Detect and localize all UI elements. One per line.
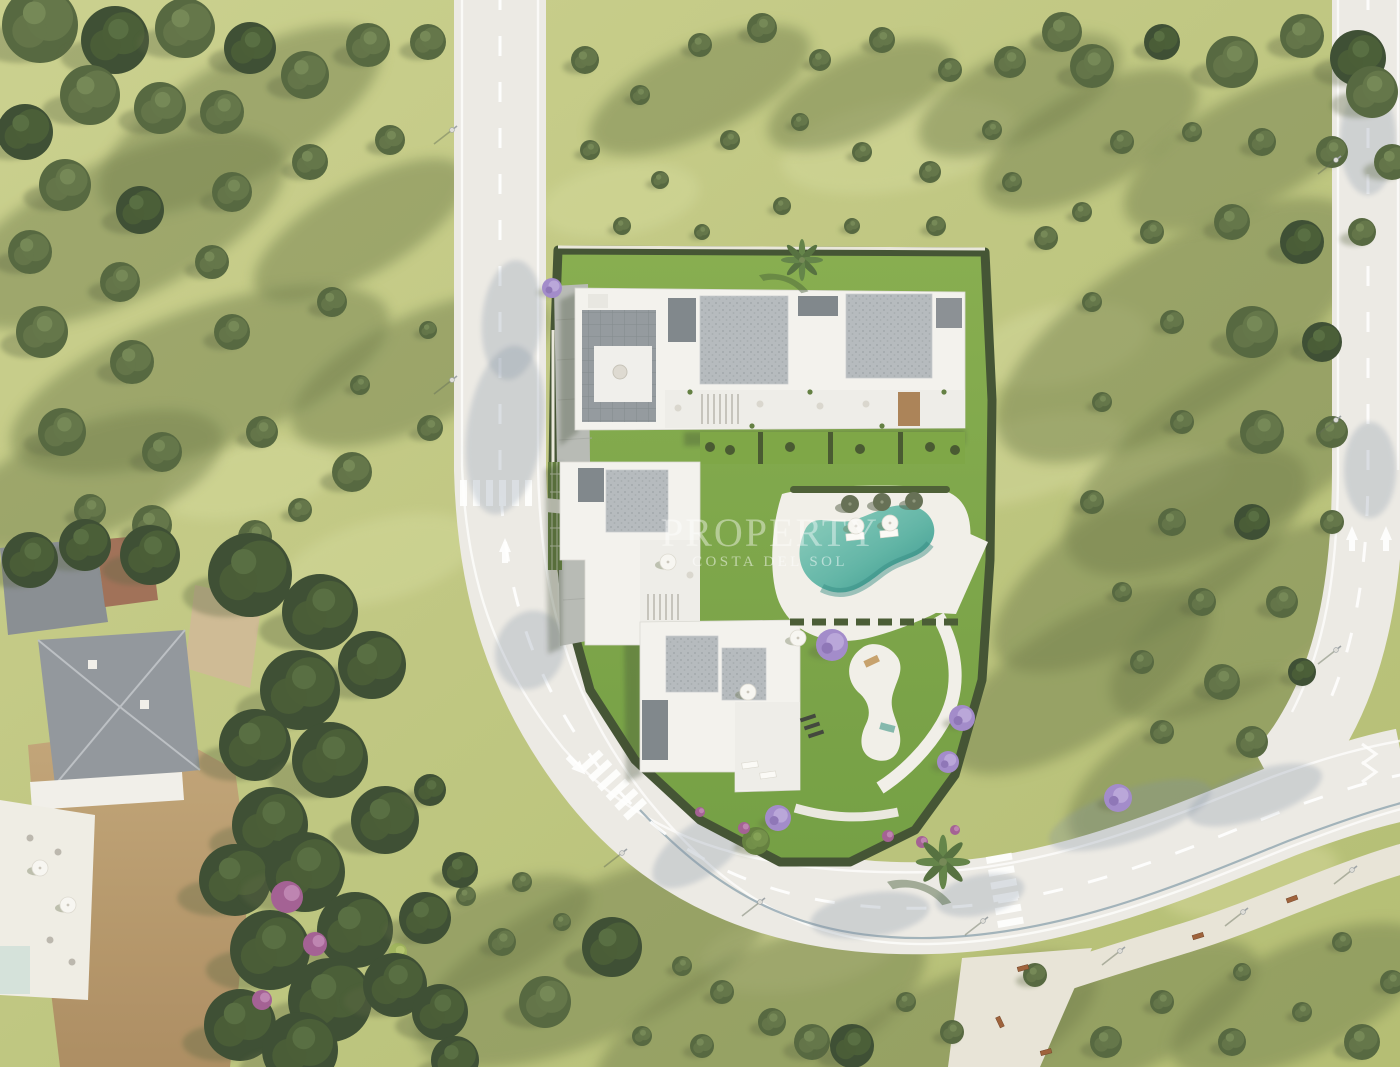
aerial-render: PROPERTY COSTA DEL SOL [0,0,1400,1067]
watermark-subtitle: COSTA DEL SOL [692,554,848,570]
scene-svg: PROPERTY COSTA DEL SOL [0,0,1400,1067]
watermark: PROPERTY COSTA DEL SOL [661,510,879,570]
watermark-title: PROPERTY [661,510,879,555]
